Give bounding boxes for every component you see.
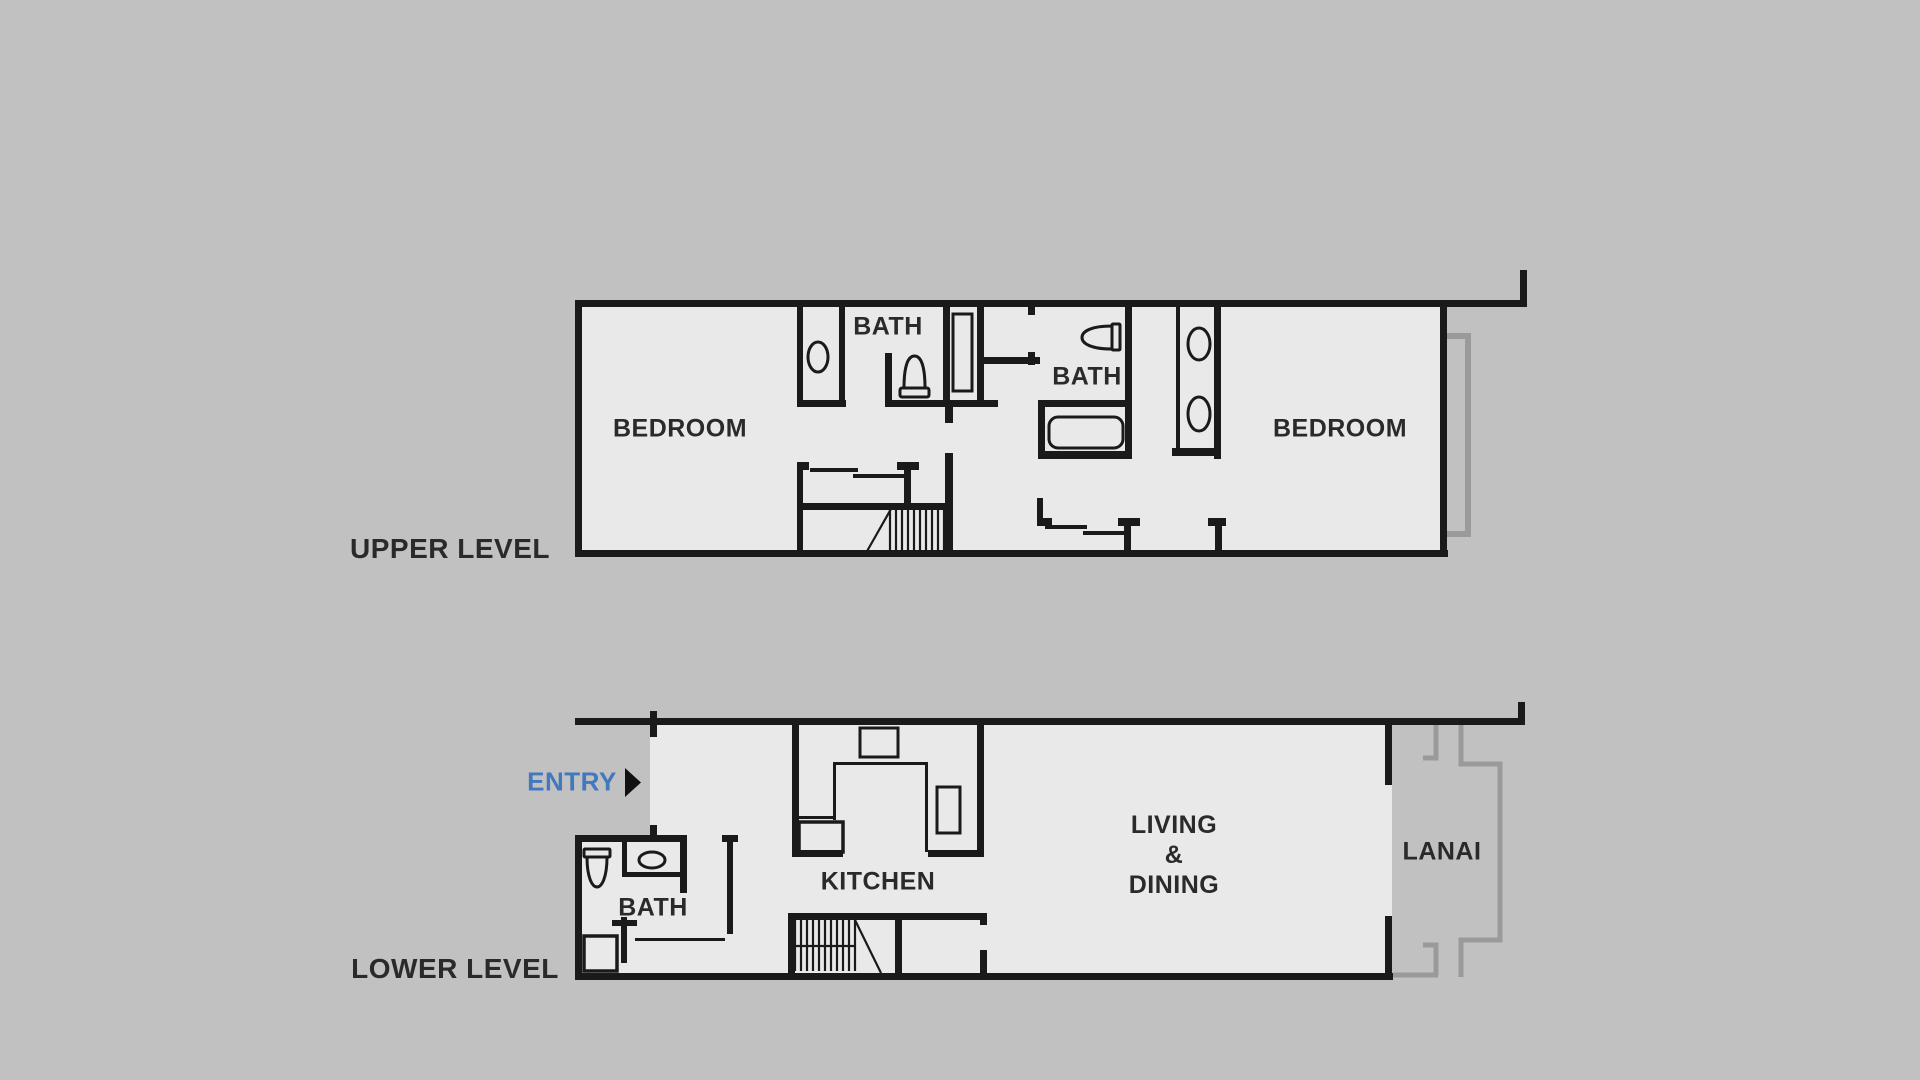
entry-arrow-icon	[625, 768, 641, 797]
dining-line: DINING	[1129, 870, 1220, 900]
lanai-label: LANAI	[1403, 838, 1482, 867]
lower-level-title: LOWER LEVEL	[351, 953, 559, 985]
kitchen-label: KITCHEN	[821, 868, 936, 897]
lower-bath-label: BATH	[618, 894, 688, 923]
upper-bath-left-label: BATH	[853, 313, 923, 342]
upper-lanai-outline	[1447, 336, 1468, 534]
upper-level-plan	[575, 270, 1527, 557]
lower-level-plan	[575, 702, 1525, 980]
upper-bath-right-label: BATH	[1052, 363, 1122, 392]
living-amp: &	[1129, 840, 1220, 870]
floor-plan-drawing	[0, 0, 1920, 1080]
floor-plan-canvas: UPPER LEVEL BEDROOM BATH BATH BEDROOM LO…	[0, 0, 1920, 1080]
living-dining-label: LIVING & DINING	[1129, 810, 1220, 900]
lower-floor-area	[650, 722, 1392, 978]
living-line: LIVING	[1129, 810, 1220, 840]
upper-level-title: UPPER LEVEL	[350, 533, 550, 565]
entry-label: ENTRY	[527, 767, 617, 798]
upper-bedroom-right-label: BEDROOM	[1273, 415, 1407, 444]
upper-bedroom-left-label: BEDROOM	[613, 415, 747, 444]
